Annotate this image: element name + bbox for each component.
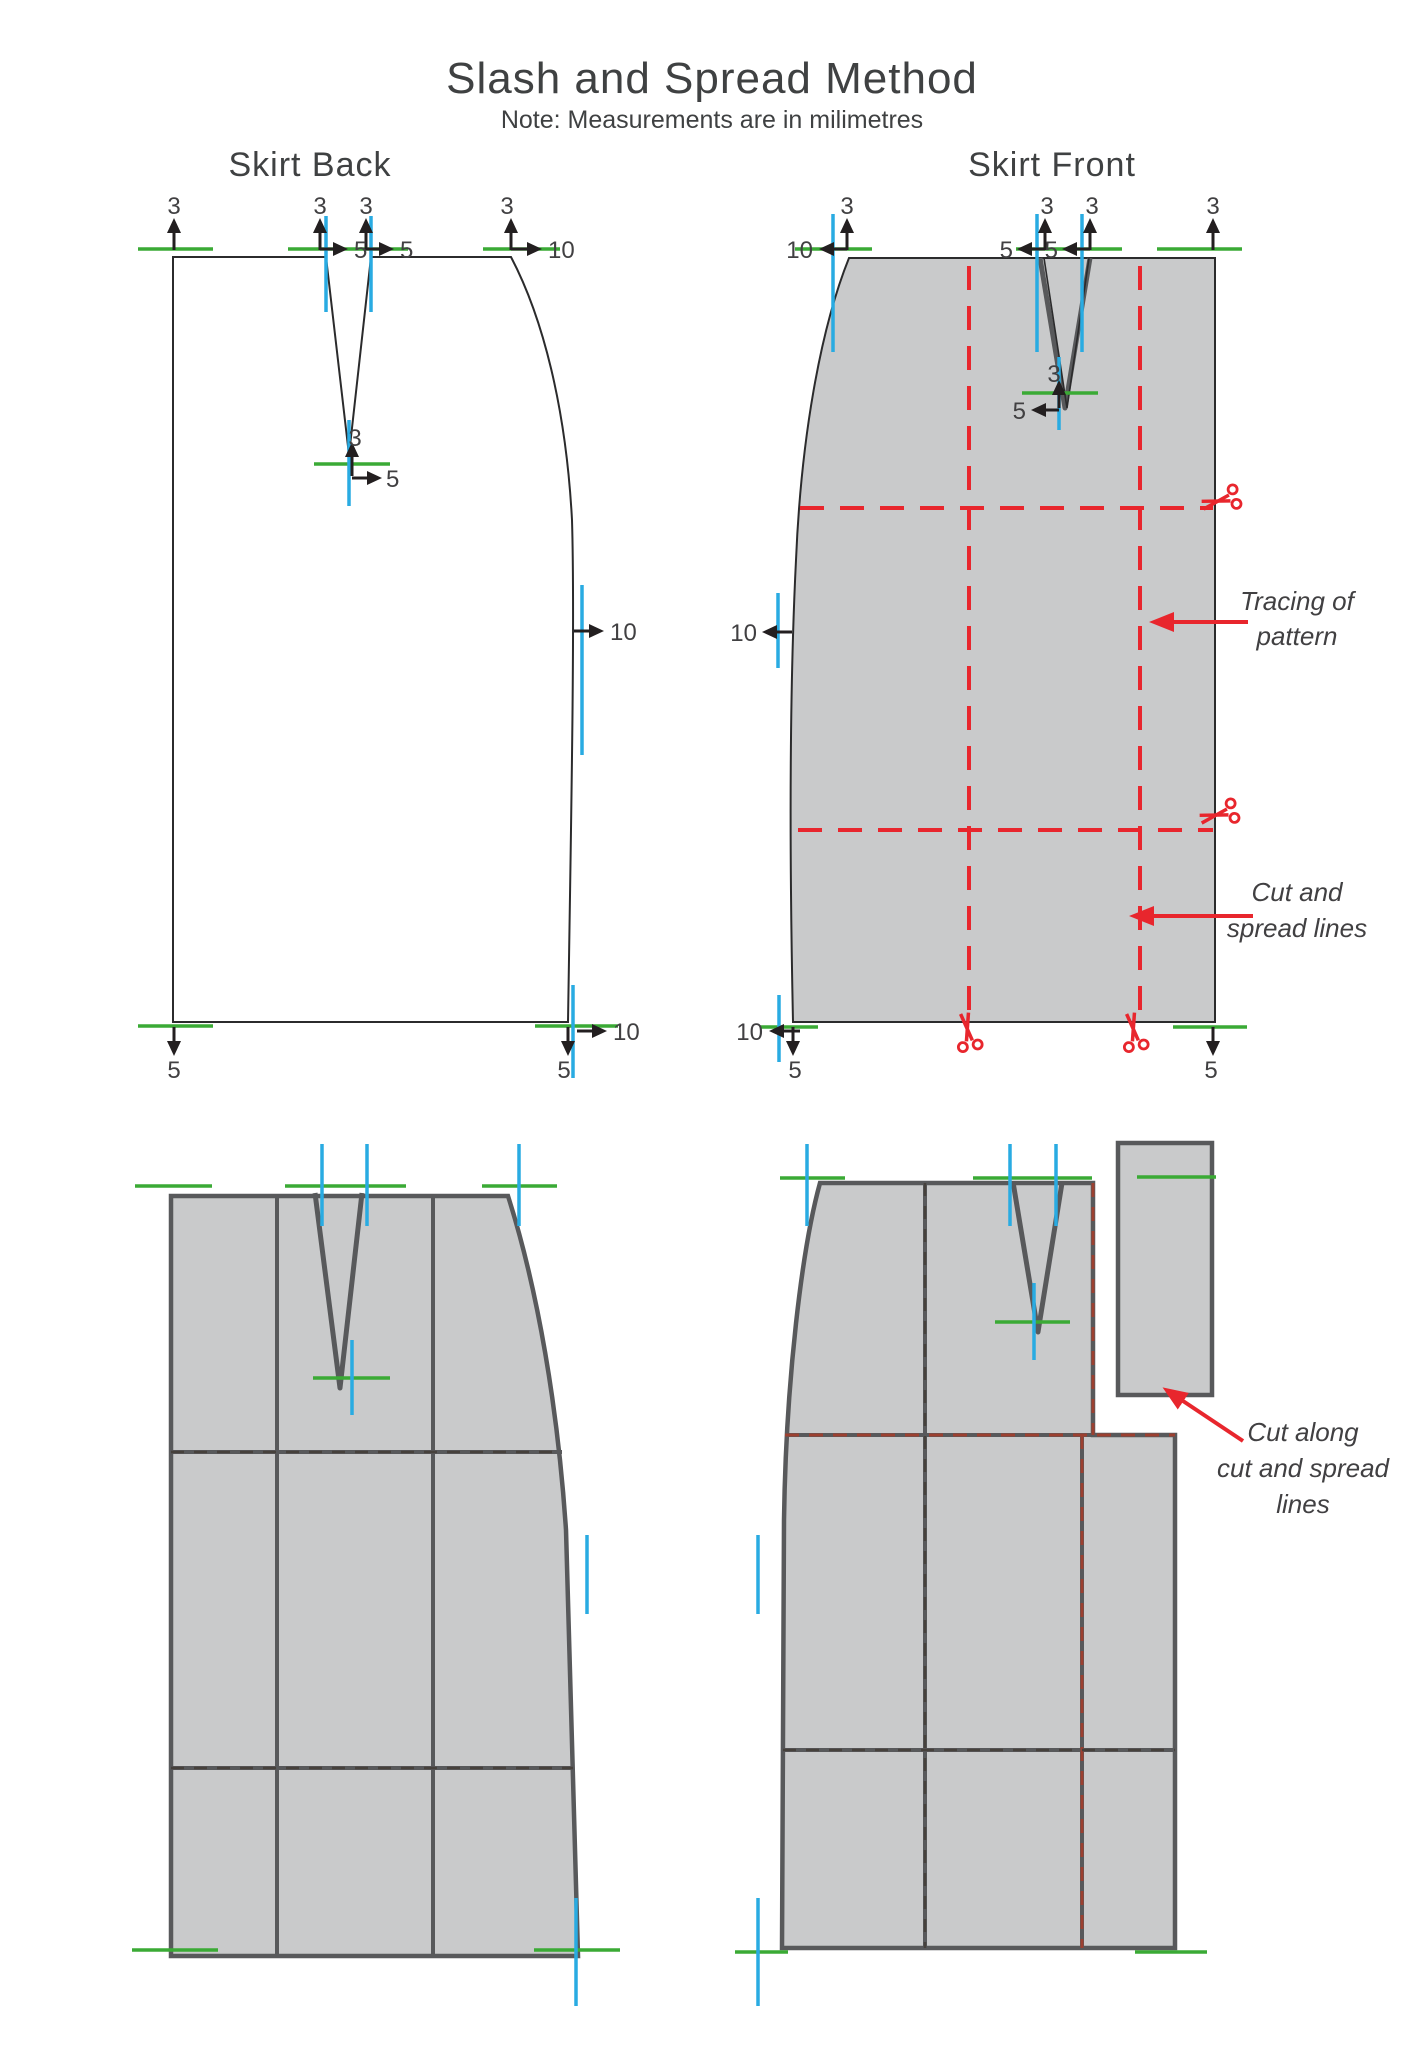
cut-along-label-line2: cut and spread [1217, 1453, 1391, 1483]
page-subtitle: Note: Measurements are in milimetres [501, 106, 923, 134]
measurement-label: 10 [736, 1019, 763, 1046]
measurement-label: 3 [1206, 193, 1219, 220]
measurement-label: 3 [1047, 361, 1060, 388]
cut-along-annotation: Cut along cut and spread lines [1180, 1399, 1391, 1519]
cut-spread-label-line1: Cut and [1251, 877, 1344, 907]
measurement-label: 3 [500, 193, 513, 220]
measurement-label: 3 [1040, 193, 1053, 220]
measurement-label: 10 [786, 237, 813, 264]
cut-away-strip [1118, 1143, 1212, 1395]
measurement-label: 10 [613, 1019, 640, 1046]
cut-along-label-line1: Cut along [1247, 1417, 1359, 1447]
cut-along-label-line3: lines [1276, 1489, 1329, 1519]
pattern-instruction-sheet: Slash and Spread Method Note: Measuremen… [0, 0, 1423, 2048]
measurement-label: 5 [167, 1057, 180, 1084]
measurement-label: 5 [1013, 398, 1026, 425]
skirt-back-diagram: 3 3 3 3 3 5 5 10 5 10 10 5 5 [138, 193, 640, 1084]
measurement-label: 5 [788, 1057, 801, 1084]
tracing-label-line1: Tracing of [1240, 586, 1356, 616]
measurement-label: 3 [348, 425, 361, 452]
measurement-label: 10 [730, 620, 757, 647]
measurement-label: 3 [1085, 193, 1098, 220]
measurement-label: 5 [354, 237, 367, 264]
measurement-label: 10 [548, 237, 575, 264]
skirt-back-slashed-diagram [132, 1144, 620, 2006]
skirt-front-outline [791, 258, 1215, 1022]
measurement-label: 5 [557, 1057, 570, 1084]
cut-spread-label-line2: spread lines [1227, 913, 1367, 943]
skirt-back-outline [173, 257, 573, 1022]
measurement-label: 3 [359, 193, 372, 220]
cut-along-arrow [1180, 1399, 1243, 1441]
measurement-label: 3 [167, 193, 180, 220]
measurement-label: 5 [1045, 237, 1058, 264]
skirt-front-diagram: 3 3 3 3 3 10 5 5 5 10 10 5 5 Tracing of … [730, 193, 1367, 1084]
skirt-front-slashed-diagram: Cut along cut and spread lines [735, 1143, 1391, 2006]
measurement-label: 3 [840, 193, 853, 220]
measurement-label: 5 [386, 466, 399, 493]
pattern-diagram: Slash and Spread Method Note: Measuremen… [0, 0, 1423, 2048]
tracing-label-line2: pattern [1256, 621, 1338, 651]
measurement-label: 10 [610, 619, 637, 646]
page-title: Slash and Spread Method [446, 54, 978, 103]
skirt-back-title: Skirt Back [228, 146, 391, 184]
measurement-label: 5 [400, 237, 413, 264]
measurement-label: 5 [1000, 237, 1013, 264]
back-slashed-outline [171, 1196, 578, 1956]
measurement-label: 3 [313, 193, 326, 220]
skirt-front-title: Skirt Front [968, 146, 1136, 184]
measurement-label: 5 [1204, 1057, 1217, 1084]
